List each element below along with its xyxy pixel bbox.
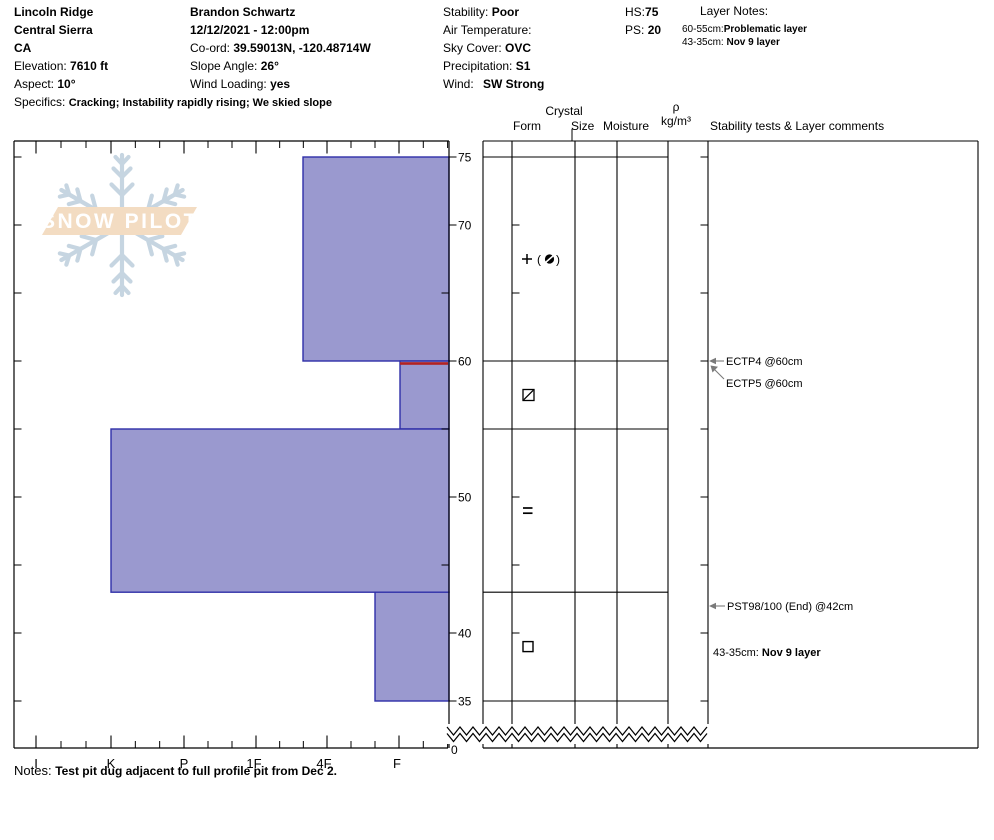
snow-layer-bar bbox=[375, 592, 449, 701]
depth-axis-label: 40 bbox=[458, 627, 472, 641]
depth-axis-zero-label: 0 bbox=[451, 743, 458, 757]
depth-axis-label: 70 bbox=[458, 219, 472, 233]
snow-layer-bar bbox=[111, 429, 449, 592]
stability-test-label: PST98/100 (End) @42cm bbox=[727, 601, 853, 613]
annotation-arrow bbox=[714, 369, 724, 379]
notes-label: Notes: bbox=[14, 763, 55, 778]
annotation-arrowhead bbox=[709, 358, 716, 364]
stability-test-label: ECTP4 @60cm bbox=[726, 356, 803, 368]
hardness-axis-label: F bbox=[393, 756, 401, 771]
depth-axis-label: 35 bbox=[458, 695, 472, 709]
depth-axis-label: 50 bbox=[458, 491, 472, 505]
stability-test-label: ECTP5 @60cm bbox=[726, 378, 803, 390]
depth-axis-label: 75 bbox=[458, 151, 472, 165]
annotation-arrowhead bbox=[709, 603, 716, 609]
grain-form-crust-icon bbox=[524, 390, 533, 399]
grain-form-paren: ) bbox=[556, 253, 560, 267]
snowpilot-report: Lincoln Ridge Central Sierra CA Elevatio… bbox=[0, 0, 994, 840]
problematic-layer-flag-line bbox=[400, 362, 448, 365]
snow-layer-bar bbox=[303, 157, 449, 361]
layer-comment-text: 43-35cm: Nov 9 layer bbox=[713, 647, 821, 659]
depth-axis-label: 60 bbox=[458, 355, 472, 369]
snow-layer-bar bbox=[400, 361, 449, 429]
notes-line: Notes: Test pit dug adjacent to full pro… bbox=[14, 762, 337, 780]
snowflake-arm bbox=[112, 233, 133, 295]
grain-form-facets-icon bbox=[523, 642, 533, 652]
watermark-text: SNOW PILOT bbox=[41, 210, 199, 233]
snow-profile-chart: SNOW PILOT7570605040350IKP1F4FF()ECTP4 @… bbox=[0, 0, 994, 840]
grain-form-paren: ( bbox=[537, 253, 541, 267]
notes-text: Test pit dug adjacent to full profile pi… bbox=[55, 764, 337, 778]
